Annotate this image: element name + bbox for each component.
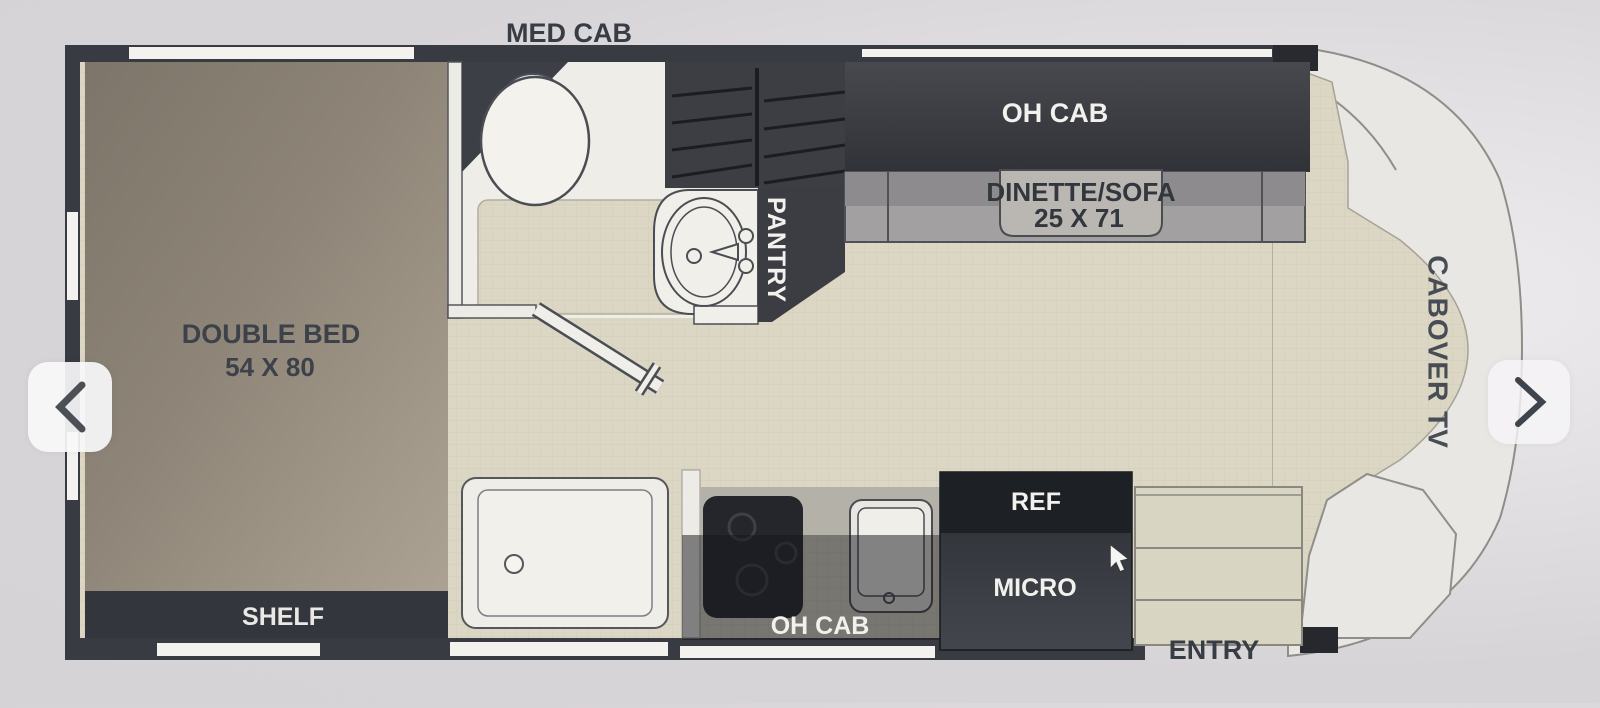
cabover-tv-label: CABOVER TV [1423, 255, 1454, 449]
med-cab-label: MED CAB [506, 18, 632, 48]
sofa-window [862, 49, 1272, 57]
carousel-next-button[interactable] [1488, 360, 1570, 444]
kitchen: OH CAB REF MICRO [682, 470, 1132, 650]
bathroom-wall-bottom [448, 305, 536, 318]
bed-dimensions-label: 54 X 80 [225, 352, 315, 382]
image-carousel-viewer: CABOVER TV DOUBLE BED 54 X 80 SHELF [0, 0, 1600, 703]
bathroom-wall-left [448, 62, 462, 318]
shelf-window [157, 643, 320, 656]
bathroom-sink [654, 190, 758, 324]
entry-door-post [1300, 627, 1338, 653]
shower-window [450, 642, 668, 656]
ref-label: REF [1011, 488, 1061, 516]
rv-floorplan-image: CABOVER TV DOUBLE BED 54 X 80 SHELF [0, 0, 1600, 703]
bedroom-window [129, 47, 414, 59]
chevron-right-icon [1509, 373, 1549, 431]
shower-drain [505, 555, 523, 573]
double-bed-label: DOUBLE BED [182, 319, 361, 349]
entry-label: ENTRY [1169, 635, 1260, 665]
oh-cab-bottom-label: OH CAB [771, 612, 870, 640]
entry-steps [1135, 487, 1302, 645]
chevron-left-icon [50, 377, 90, 437]
oh-cab-top-label: OH CAB [1002, 98, 1109, 128]
pantry-label: PANTRY [762, 197, 790, 303]
left-window-1 [67, 212, 78, 300]
dinette-dimensions-label: 25 X 71 [1034, 203, 1124, 233]
micro-label: MICRO [993, 574, 1076, 602]
kitchen-window [680, 646, 935, 658]
bedroom: DOUBLE BED 54 X 80 SHELF [85, 62, 448, 638]
shelf-label: SHELF [242, 603, 324, 631]
carousel-prev-button[interactable] [28, 362, 112, 452]
toilet [481, 74, 589, 205]
dinette-area: OH CAB DINETTE/SOFA 25 X 71 [845, 62, 1310, 242]
shower [462, 478, 668, 628]
